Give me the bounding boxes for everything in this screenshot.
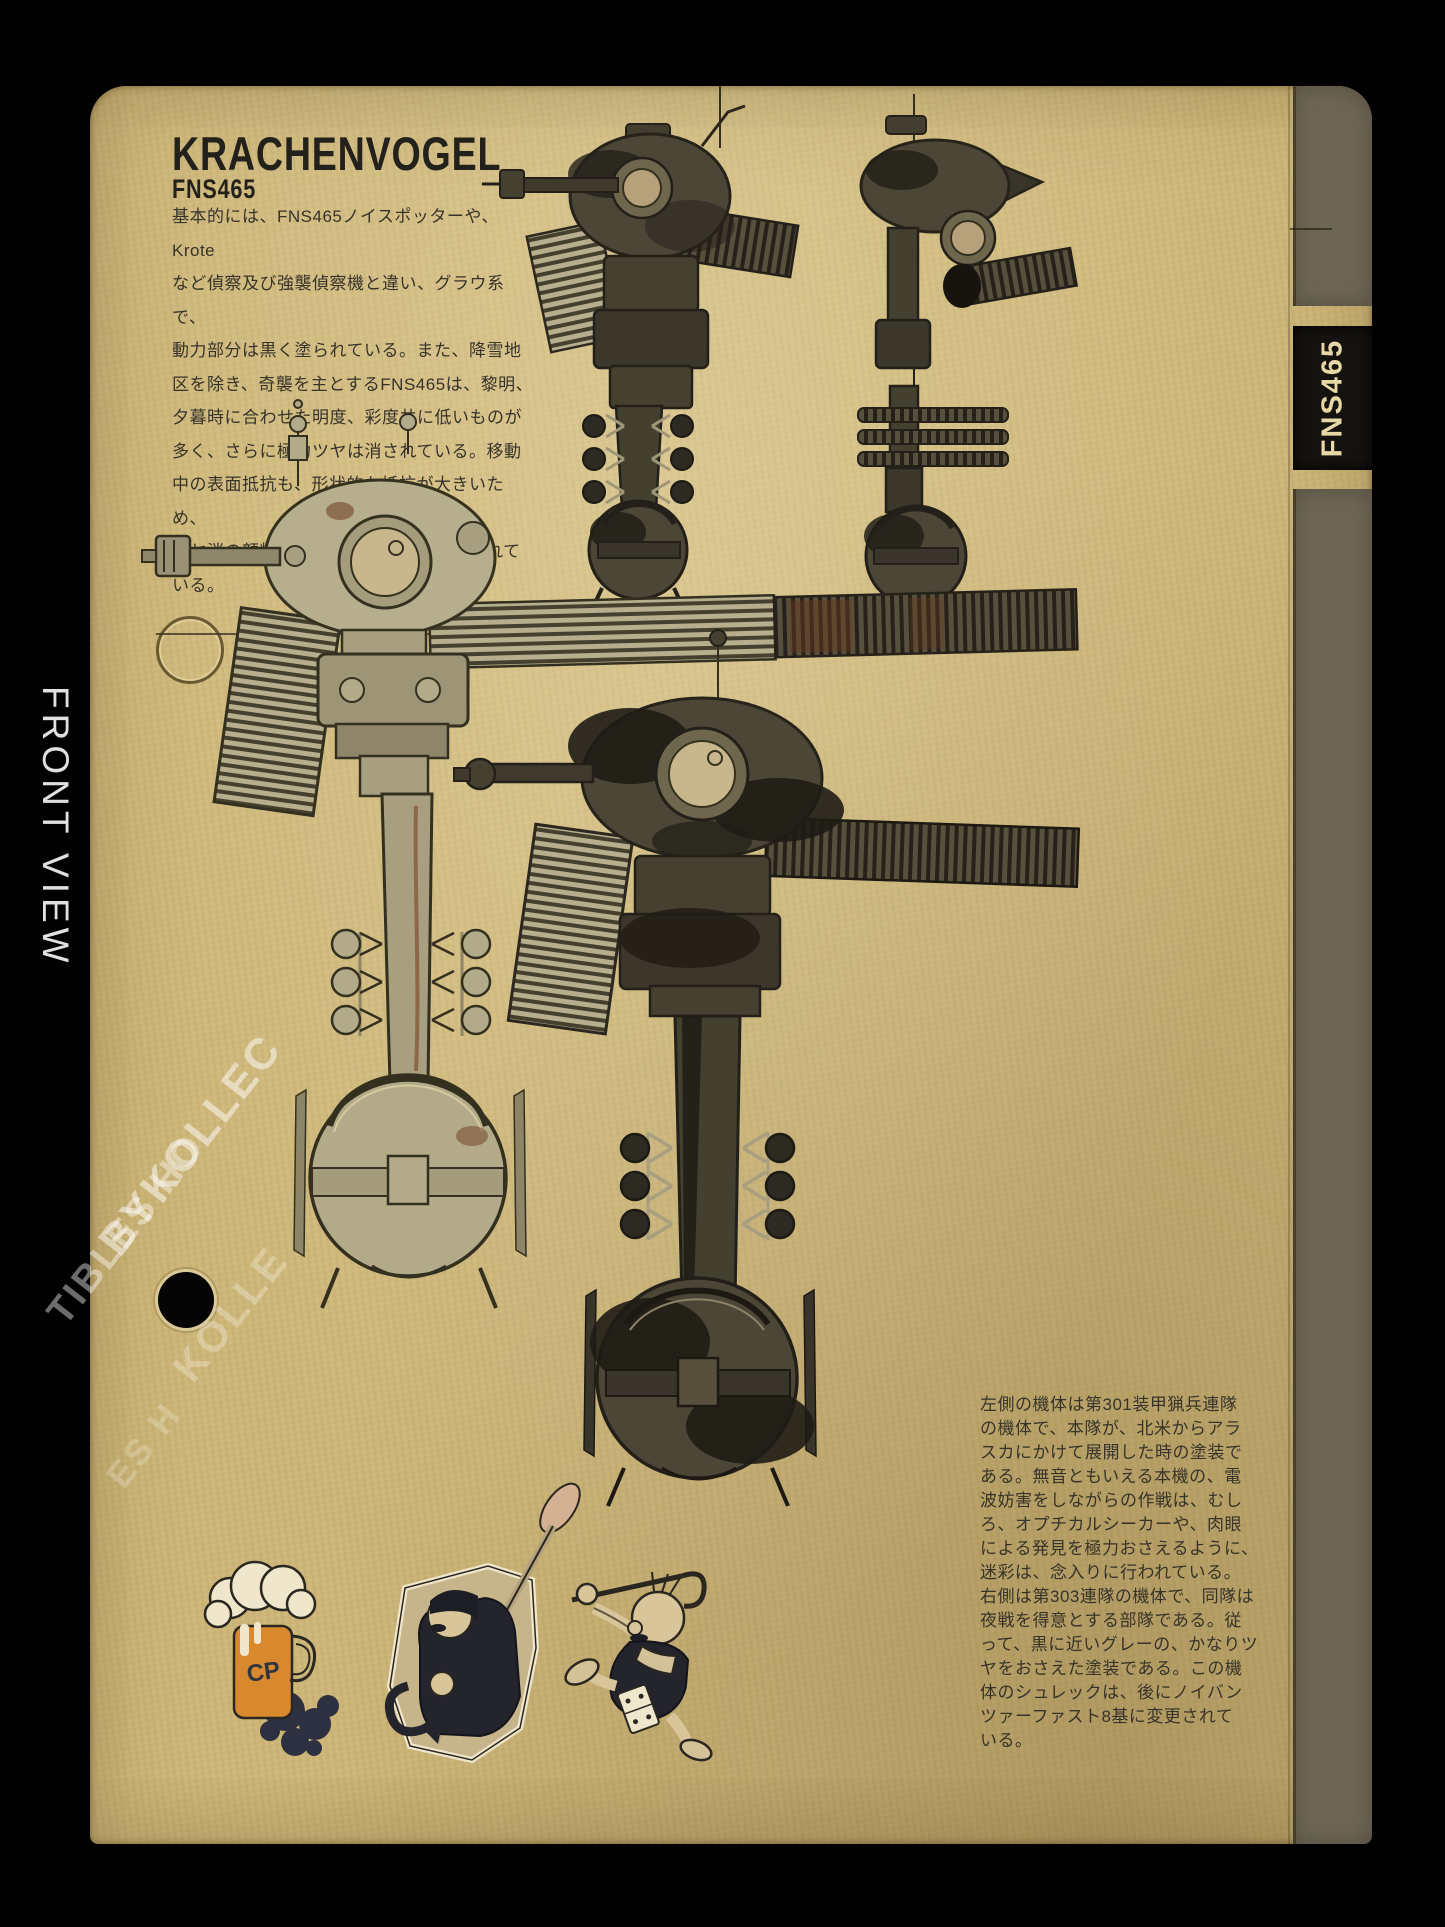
photo-background: FRONT VIEW KRACHENVOGEL FNS465 基本的には、FNS… (0, 0, 1445, 1927)
document-page: KRACHENVOGEL FNS465 基本的には、FNS465ノイスポッターや… (90, 86, 1372, 1844)
cartoon-running-chef (561, 1572, 714, 1764)
mech-top-center-dark (482, 86, 798, 618)
cartoon-beer-mug: CP (205, 1562, 339, 1756)
mech-bottom-center-camo (454, 630, 1079, 1506)
mug-initials: CP (245, 1657, 282, 1688)
mech-top-right-dark (858, 94, 1077, 630)
cartoon-suited-man (389, 1477, 587, 1760)
technical-illustrations: CP (90, 86, 1372, 1844)
front-view-label: FRONT VIEW (34, 686, 76, 968)
